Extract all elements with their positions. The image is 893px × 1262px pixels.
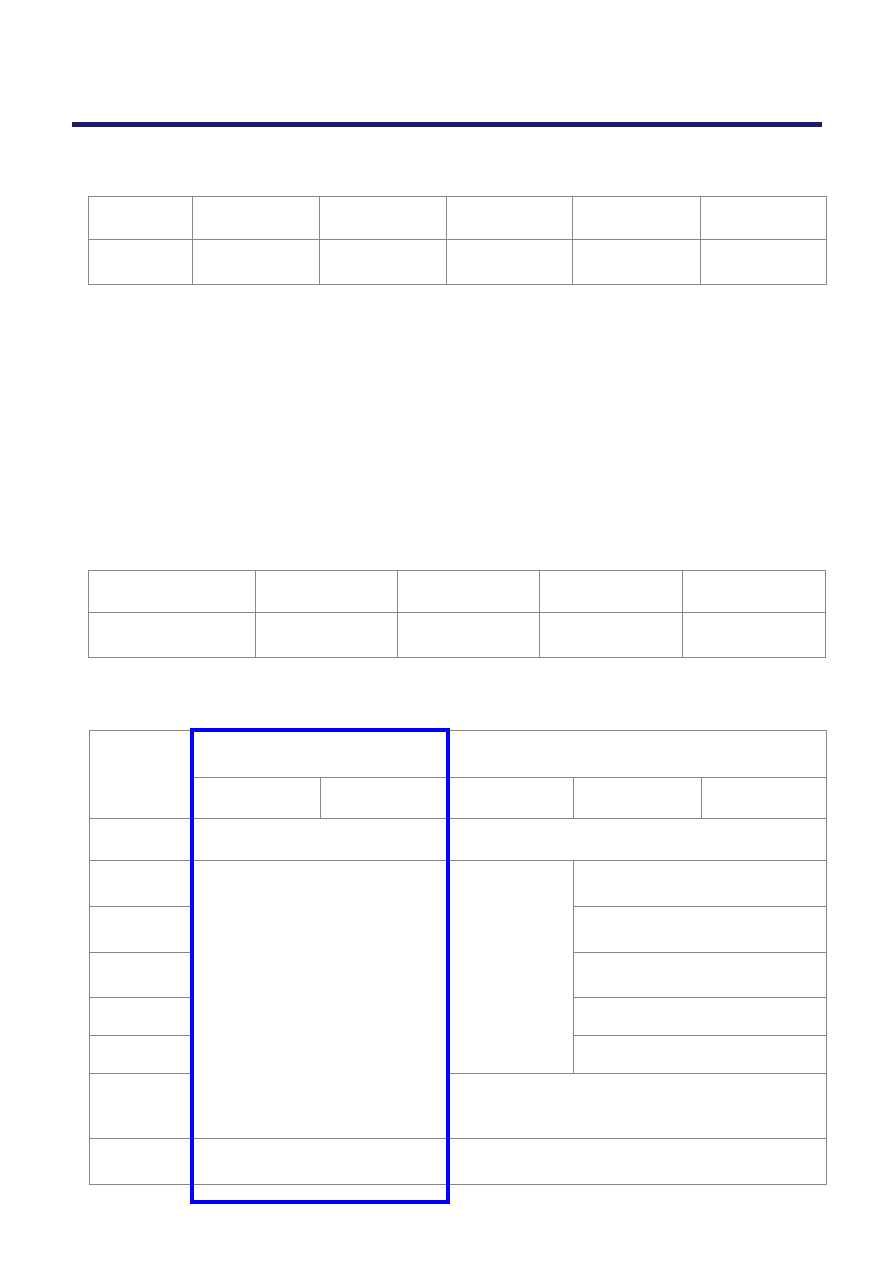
table-cell xyxy=(574,998,827,1036)
table-cell xyxy=(193,197,320,240)
middle-table xyxy=(88,570,826,658)
table-cell xyxy=(194,731,448,778)
table-cell xyxy=(256,571,398,613)
table-cell xyxy=(194,861,448,1139)
table-cell xyxy=(321,778,448,819)
table-cell xyxy=(90,1036,194,1074)
table-cell xyxy=(194,778,321,819)
table-cell xyxy=(702,778,827,819)
table-cell xyxy=(447,240,573,285)
table-cell xyxy=(574,907,827,953)
table-cell xyxy=(448,861,574,1074)
table-cell xyxy=(398,571,540,613)
table-cell xyxy=(448,778,574,819)
table-cell xyxy=(320,240,447,285)
table-cell xyxy=(448,731,827,778)
table-cell xyxy=(573,240,701,285)
table-cell xyxy=(448,819,827,861)
table-cell xyxy=(90,861,194,907)
table-cell xyxy=(447,197,573,240)
table-cell xyxy=(194,1139,448,1185)
table-cell xyxy=(683,613,826,658)
table-cell xyxy=(90,1139,194,1185)
table-cell xyxy=(574,861,827,907)
table-cell xyxy=(574,778,702,819)
horizontal-rule xyxy=(72,122,822,127)
table-cell xyxy=(701,197,827,240)
table-cell xyxy=(90,907,194,953)
table-cell xyxy=(90,819,194,861)
top-table xyxy=(88,196,827,285)
table-cell xyxy=(573,197,701,240)
bottom-table xyxy=(89,730,827,1185)
table-cell xyxy=(89,240,193,285)
table-cell xyxy=(90,953,194,998)
table-cell xyxy=(574,1036,827,1074)
table-cell xyxy=(90,1074,194,1139)
table-cell xyxy=(574,953,827,998)
table-cell xyxy=(540,571,683,613)
table-cell xyxy=(89,197,193,240)
table-cell xyxy=(448,1074,827,1139)
table-cell xyxy=(540,613,683,658)
table-cell xyxy=(701,240,827,285)
table-cell xyxy=(194,819,448,861)
table-cell xyxy=(320,197,447,240)
table-cell xyxy=(256,613,398,658)
table-cell xyxy=(90,731,194,819)
document-page xyxy=(0,0,893,1262)
table-cell xyxy=(89,571,256,613)
table-cell xyxy=(398,613,540,658)
table-cell xyxy=(193,240,320,285)
table-cell xyxy=(90,998,194,1036)
table-cell xyxy=(89,613,256,658)
table-cell xyxy=(448,1139,827,1185)
table-cell xyxy=(683,571,826,613)
